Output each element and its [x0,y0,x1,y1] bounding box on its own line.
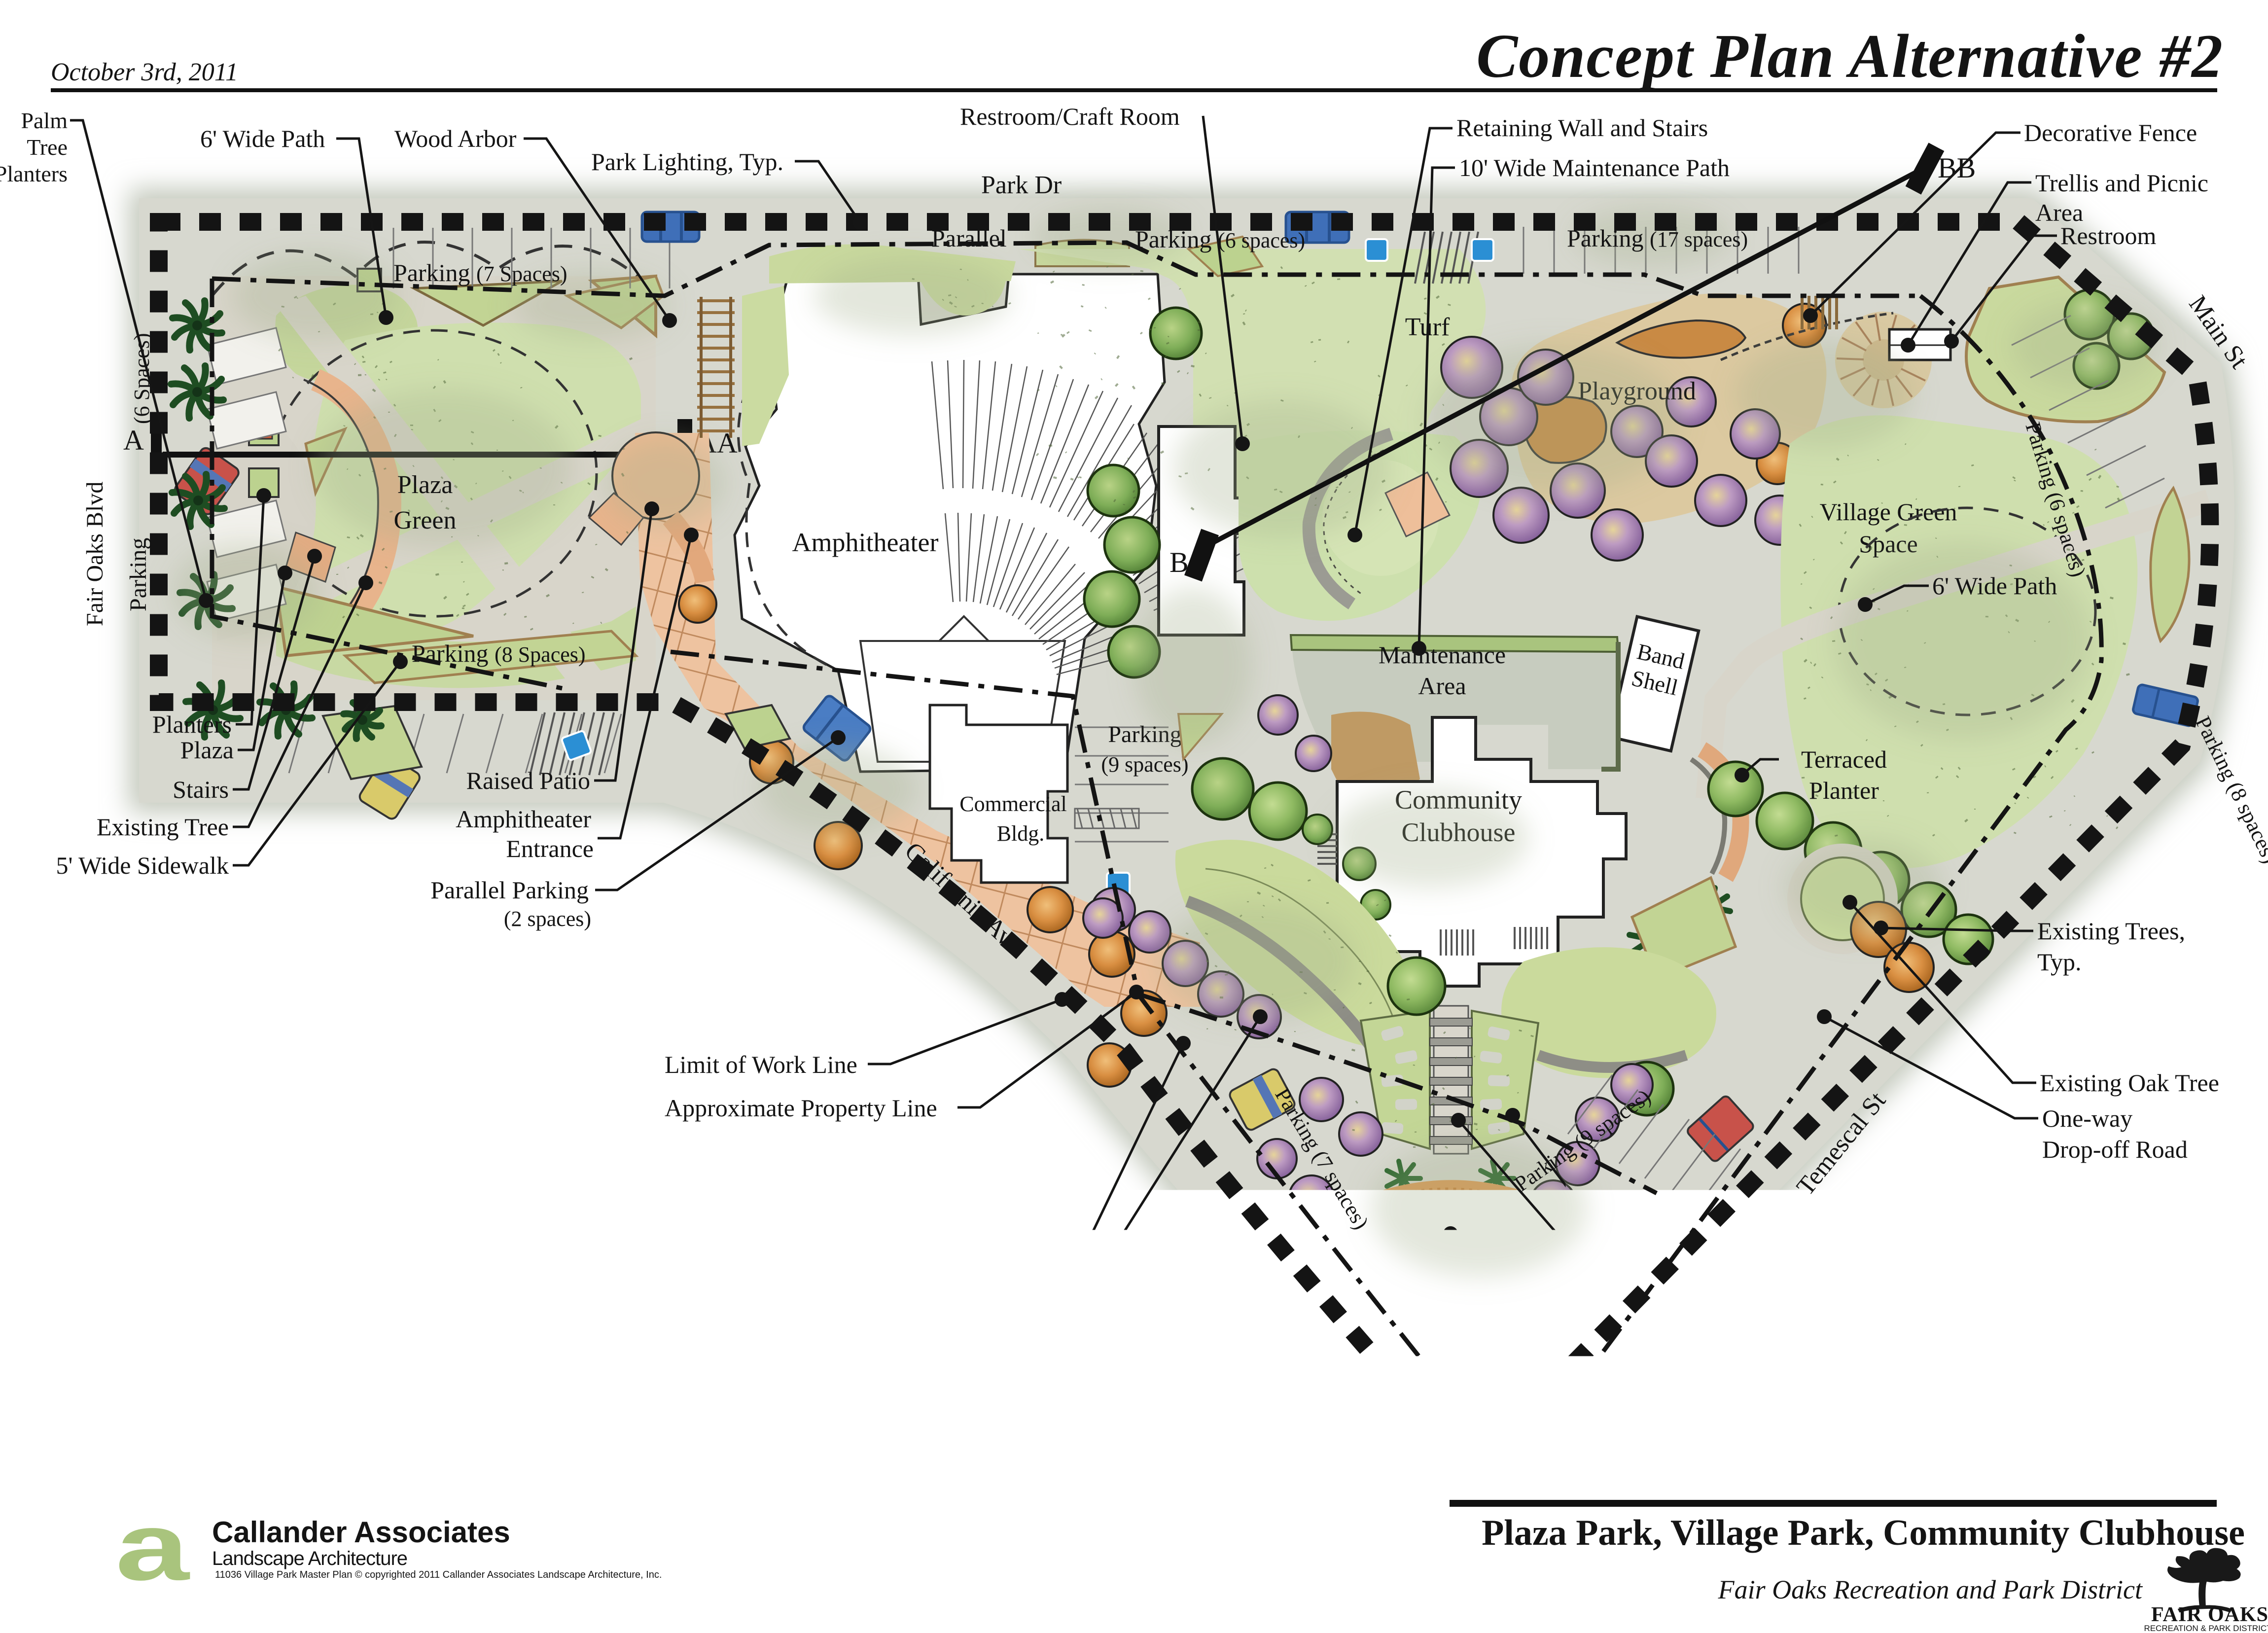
svg-text:6' Wide Path: 6' Wide Path [1932,572,2057,600]
svg-text:Parking: Parking [125,538,151,611]
svg-text:Restroom: Restroom [2060,222,2157,249]
svg-text:Trellis and Picnic: Trellis and Picnic [2035,169,2208,197]
svg-text:Retaining Wall and Stairs: Retaining Wall and Stairs [1456,114,1708,142]
svg-text:0: 0 [91,1452,106,1483]
svg-text:Approximate Property Line: Approximate Property Line [665,1094,937,1122]
svg-text:Ornamental Tree, Typ.: Ornamental Tree, Typ. [837,1241,1059,1269]
svg-text:RECREATION & PARK DISTRICT: RECREATION & PARK DISTRICT [2144,1624,2268,1633]
svg-text:Wood Arbor: Wood Arbor [394,125,517,152]
svg-text:Stairs: Stairs [173,776,229,803]
svg-text:Flower Garden: Flower Garden [1672,1365,1821,1393]
svg-text:25: 25 [121,1452,151,1483]
svg-text:Area: Area [1418,672,1466,700]
svg-text:11036 Village Park Master Plan: 11036 Village Park Master Plan © copyrig… [215,1569,662,1580]
svg-text:Parking (17 spaces): Parking (17 spaces) [1567,224,1748,252]
svg-text:50: 50 [168,1452,198,1483]
svg-text:Existing Stone Wall: Existing Stone Wall [869,1283,1065,1311]
svg-text:Planters: Planters [0,161,68,186]
svg-text:(9 spaces): (9 spaces) [1101,752,1188,777]
svg-text:Park Lighting, Typ.: Park Lighting, Typ. [591,148,783,176]
svg-text:B: B [1169,546,1189,578]
svg-text:Existing Trees,: Existing Trees, [2037,917,2185,945]
svg-text:(2 spaces): (2 spaces) [504,907,591,931]
svg-text:Amphitheater: Amphitheater [792,528,939,557]
svg-text:One-way: One-way [2042,1104,2132,1132]
svg-text:Park Dr: Park Dr [981,171,1062,199]
svg-text:Concept Plan Alternative #2: Concept Plan Alternative #2 [1476,22,2224,91]
svg-text:Landscape Architecture: Landscape Architecture [212,1548,407,1569]
svg-text:Entrance: Entrance [506,835,594,862]
svg-text:Limit of Work Line: Limit of Work Line [665,1051,857,1078]
svg-text:Stairs to Clubhouse: Stairs to Clubhouse [1672,1322,1866,1349]
svg-text:Callander Associates: Callander Associates [212,1516,510,1549]
svg-text:Fair Oaks Blvd: Fair Oaks Blvd [82,482,108,626]
svg-text:Green: Green [393,506,456,534]
svg-text:Palm: Palm [21,108,68,133]
svg-text:Tree: Tree [27,135,68,160]
svg-text:10' Wide Maintenance Path: 10' Wide Maintenance Path [1459,154,1730,181]
svg-text:6' Wide Path: 6' Wide Path [200,125,325,152]
svg-text:FAIR OAKS: FAIR OAKS [2151,1603,2268,1626]
svg-text:October 3rd, 2011: October 3rd, 2011 [51,58,238,86]
svg-text:Maintenance: Maintenance [1379,641,1506,669]
svg-text:Parking (8 Spaces): Parking (8 Spaces) [412,639,586,667]
svg-text:Planters: Planters [152,710,232,738]
svg-text:Typ.: Typ. [2037,948,2082,976]
svg-text:Existing Oak Tree: Existing Oak Tree [2040,1069,2219,1097]
svg-text:Planter: Planter [1809,777,1879,804]
svg-text:Drop-off Road: Drop-off Road [2042,1136,2188,1163]
svg-text:Amphitheater: Amphitheater [456,805,591,833]
svg-text:5' Wide Sidewalk: 5' Wide Sidewalk [56,852,229,879]
svg-text:Formal Rose Garden: Formal Rose Garden [1672,1278,1878,1305]
svg-text:Parking (7 Spaces): Parking (7 Spaces) [393,259,567,286]
svg-text:A: A [123,424,144,456]
svg-text:a: a [115,1492,190,1600]
svg-text:Plaza: Plaza [397,471,453,499]
svg-text:Raised Patio: Raised Patio [466,767,590,794]
svg-text:Fair Oaks Recreation and Park: Fair Oaks Recreation and Park District [1718,1575,2143,1604]
svg-text:Accessible Parking Stall, Typ.: Accessible Parking Stall, Typ. [765,1327,1062,1354]
svg-text:Plaza Park, Village Park, Comm: Plaza Park, Village Park, Community Club… [1482,1513,2245,1553]
svg-text:Restroom/Craft Room: Restroom/Craft Room [960,103,1180,130]
svg-text:100 FEET: 100 FEET [239,1452,363,1483]
svg-text:Plaza: Plaza [180,736,234,764]
svg-text:Commercial: Commercial [959,792,1067,816]
svg-text:Terraced: Terraced [1801,745,1887,773]
svg-text:Bldg.: Bldg. [997,821,1045,846]
svg-text:Parallel Parking: Parallel Parking [430,876,589,904]
svg-text:Parallel: Parallel [931,224,1007,252]
svg-text:Decorative Fence: Decorative Fence [2024,119,2197,146]
svg-text:Existing Tree: Existing Tree [97,813,229,841]
